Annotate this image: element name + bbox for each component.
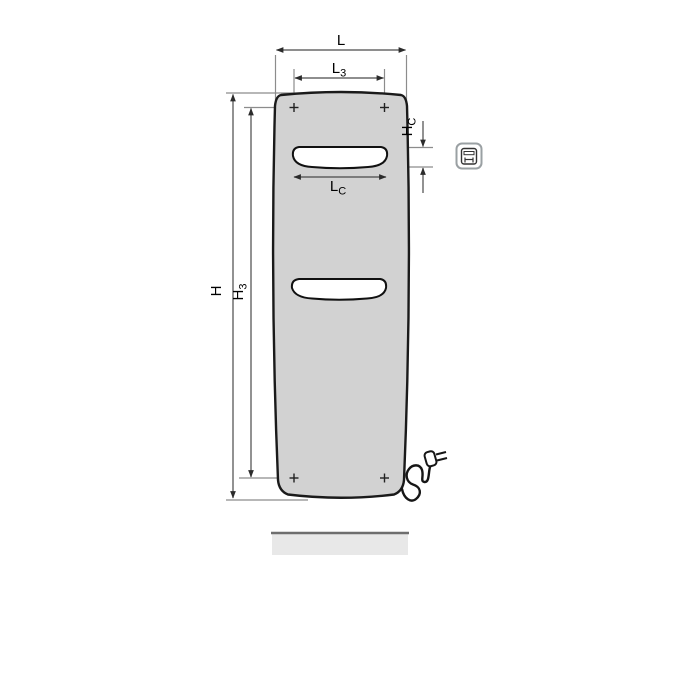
technical-drawing-canvas: L L3 LC H H3 HC <box>0 0 700 700</box>
icon-frame <box>457 144 482 169</box>
plug-prong-bottom <box>437 458 447 461</box>
plug-prong-top <box>436 452 446 455</box>
power-cable <box>402 465 431 500</box>
grip-slot-middle <box>292 279 386 300</box>
floor-strip <box>272 534 408 555</box>
power-plug <box>424 450 447 467</box>
dimension-label-H: H <box>208 286 225 297</box>
plug-body <box>424 450 438 467</box>
dimension-label-L: L <box>337 32 345 49</box>
radiator-dimension-diagram: L L3 LC H H3 HC <box>0 0 700 700</box>
dimension-label-L3: L3 <box>332 60 346 80</box>
radiator-front-pictogram-icon <box>457 144 482 169</box>
grip-slot-top <box>293 147 387 168</box>
floor <box>271 533 409 555</box>
icon-slot <box>464 152 474 155</box>
